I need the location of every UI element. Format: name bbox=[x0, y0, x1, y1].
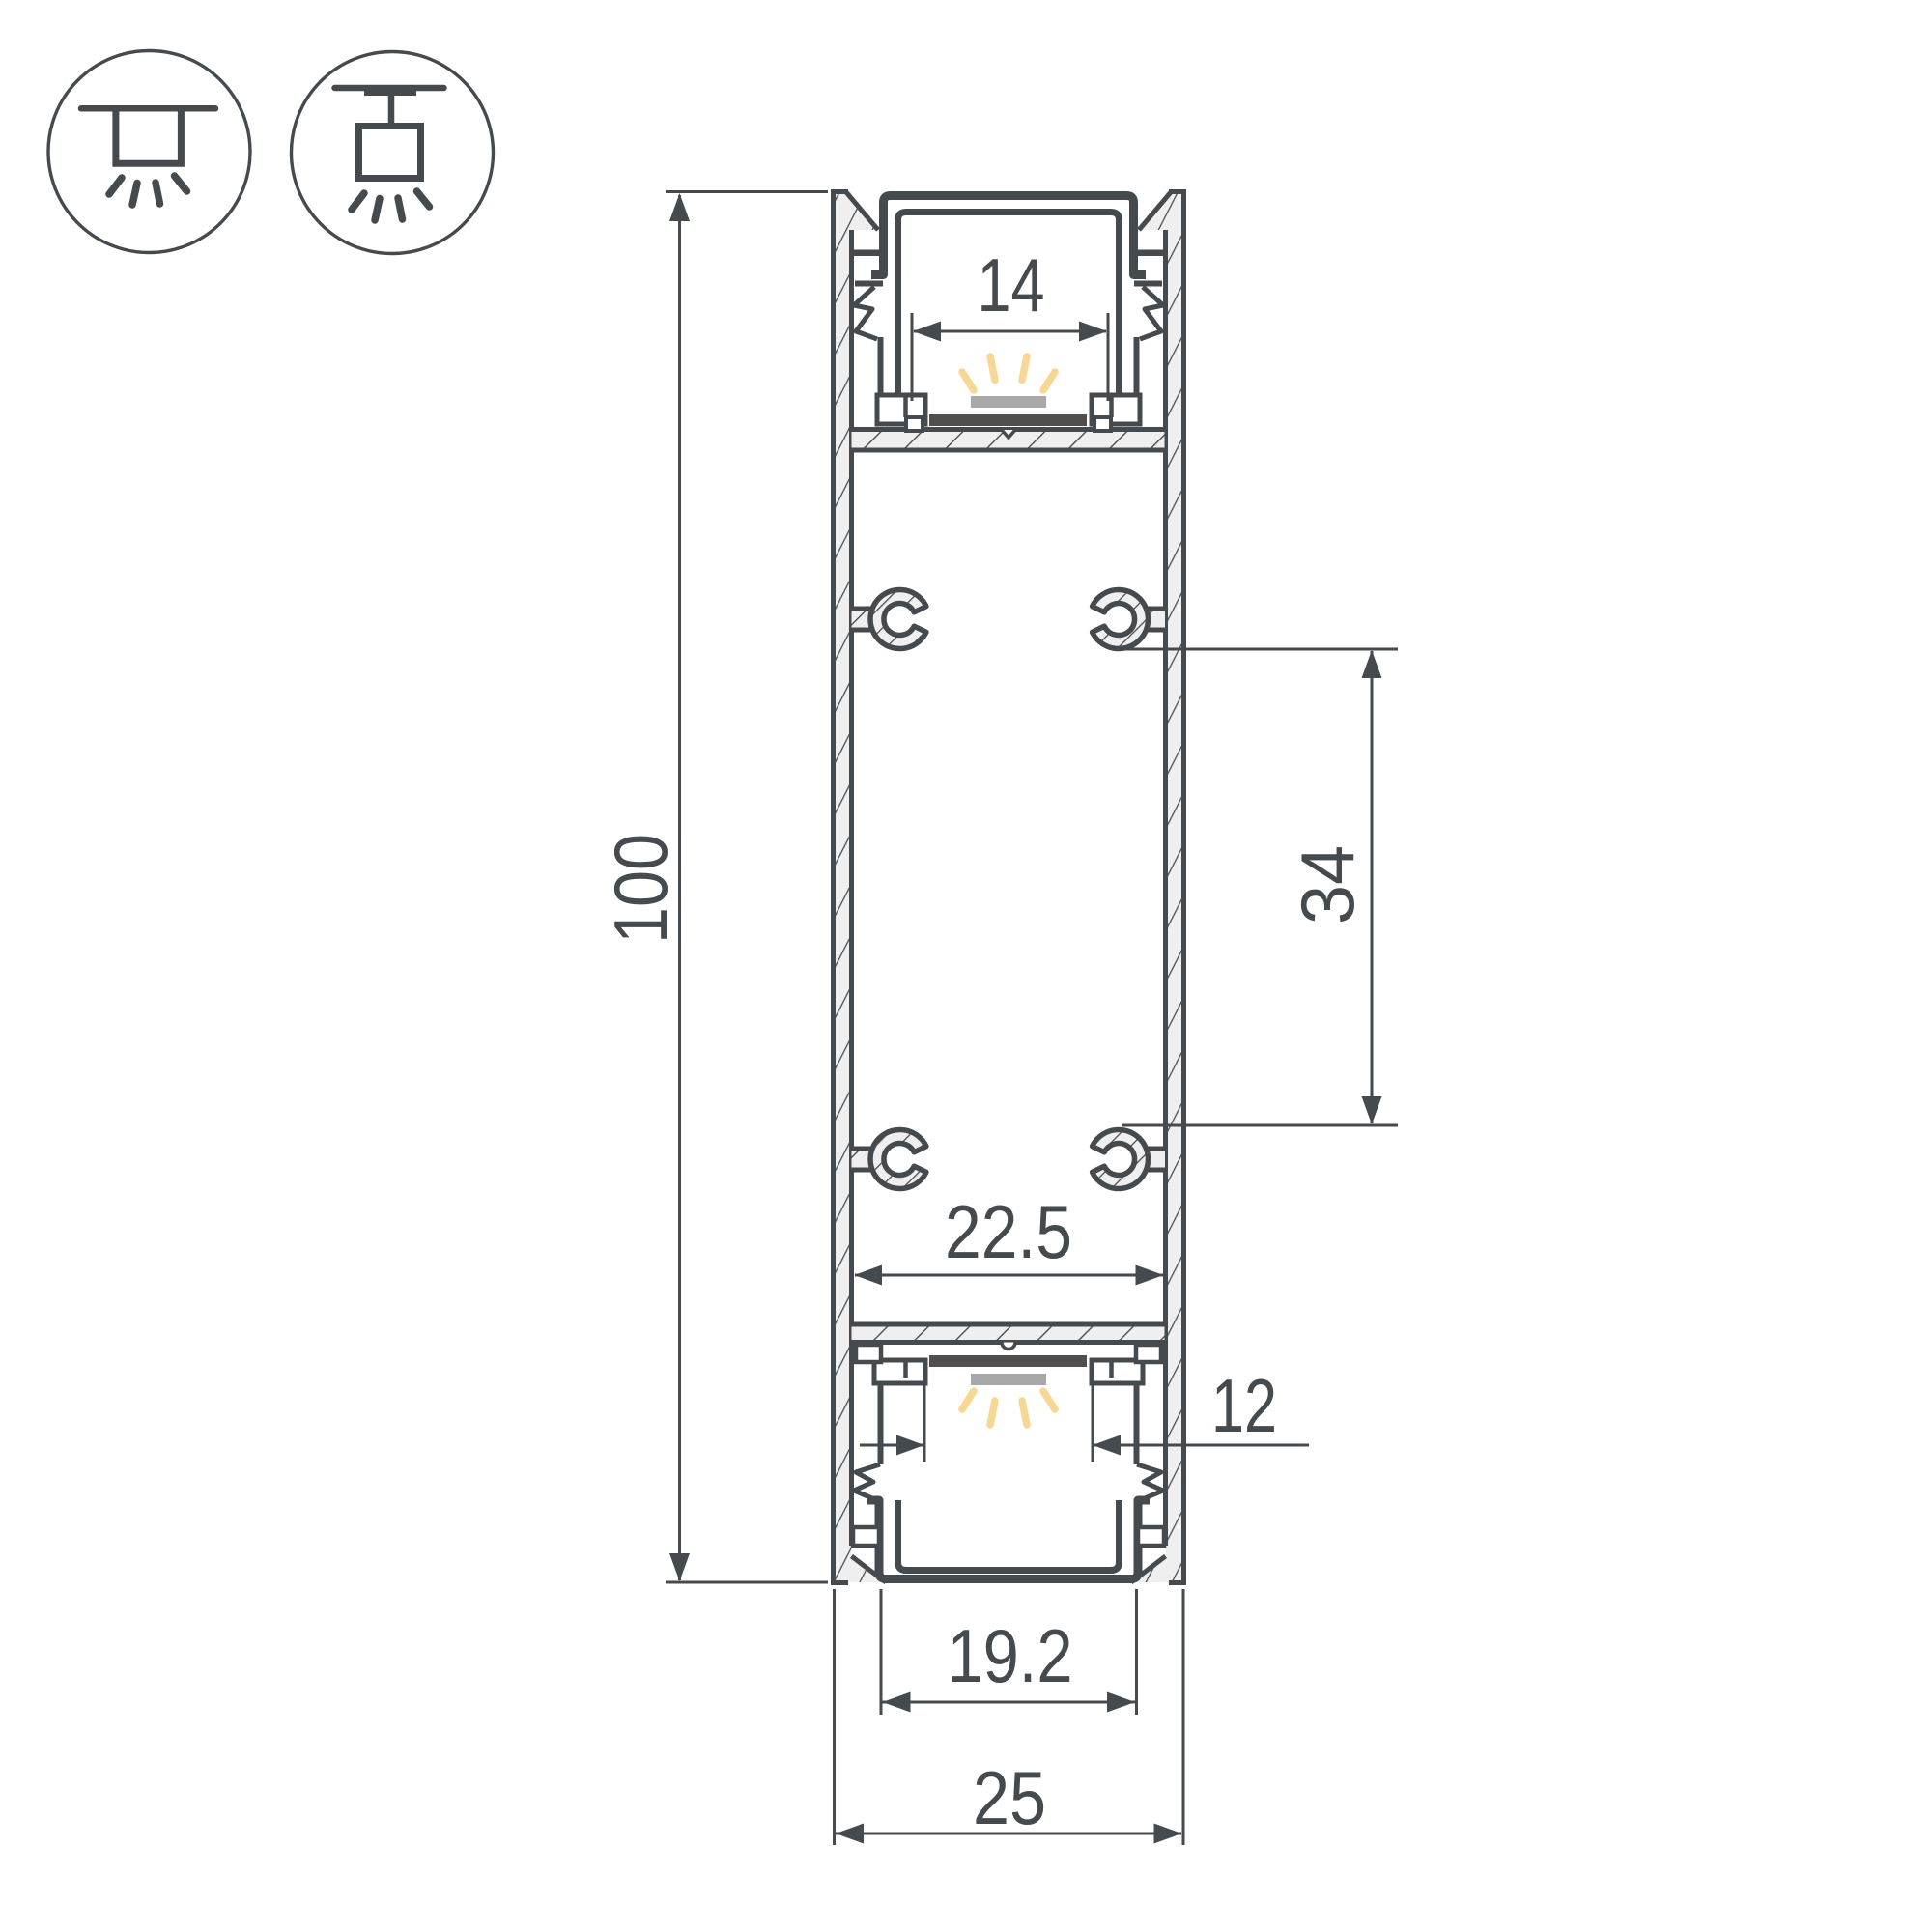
svg-text:34: 34 bbox=[1285, 845, 1370, 924]
svg-text:19.2: 19.2 bbox=[948, 1613, 1073, 1698]
svg-text:14: 14 bbox=[978, 242, 1045, 327]
svg-text:100: 100 bbox=[598, 834, 683, 944]
svg-text:12: 12 bbox=[1211, 1363, 1277, 1448]
svg-text:25: 25 bbox=[973, 1755, 1046, 1840]
svg-text:22.5: 22.5 bbox=[945, 1189, 1072, 1274]
